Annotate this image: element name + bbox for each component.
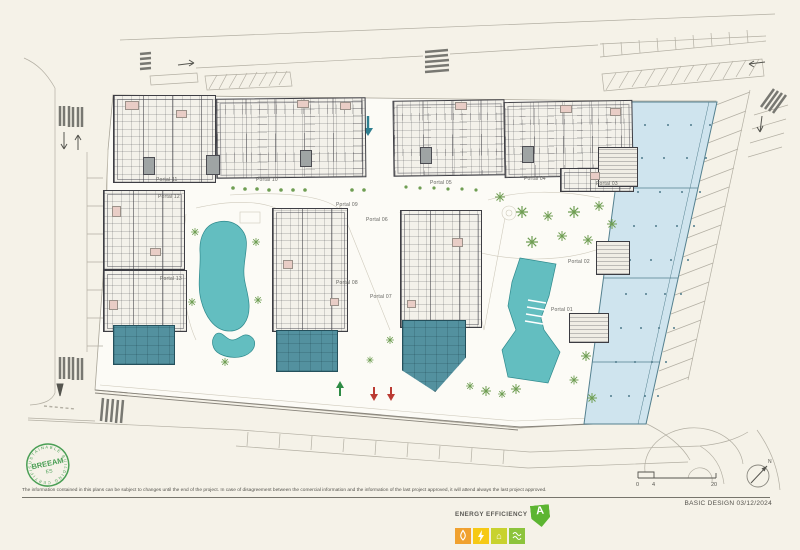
title-block: BASIC DESIGN 03/12/2024 [600, 500, 772, 507]
portal-label: Portal 11 [156, 177, 177, 183]
stair-core [522, 146, 534, 163]
terrace-patch [112, 206, 121, 217]
footer-rule [22, 497, 770, 498]
stair-core [300, 150, 312, 167]
stair-core [143, 157, 155, 175]
portal-label: Portal 02 [568, 259, 590, 265]
heating-waves-icon [509, 528, 525, 544]
scale-bar: 0 4 20 [628, 462, 728, 488]
portal-label: Portal 07 [370, 294, 392, 300]
terrace-patch [590, 172, 600, 180]
terrace-patch [455, 102, 467, 110]
breeam-region: ES [45, 468, 53, 475]
terrace-patch [452, 238, 463, 247]
terrace-patch [340, 102, 351, 110]
energy-efficiency-label: ENERGY EFFICIENCY A ⌂ [455, 505, 550, 544]
portal-core [596, 241, 630, 275]
terrace-patch [125, 101, 139, 110]
stair-core [420, 147, 432, 164]
portal-label: Portal 01 [551, 307, 573, 313]
svg-text:N: N [768, 459, 772, 465]
energy-label-title: ENERGY EFFICIENCY [455, 511, 527, 518]
portal-label: Portal 13 [160, 276, 182, 282]
terrace-patch [297, 100, 309, 108]
lightning-icon [473, 528, 489, 544]
energy-rating-arrow: A [530, 504, 551, 528]
portal-label: Portal 10 [256, 177, 278, 183]
terrace-patch [330, 298, 339, 306]
building-block [272, 208, 348, 332]
terrace-patch [109, 300, 118, 310]
disclaimer-text: The information contained in this plans … [22, 488, 582, 493]
water-drop-icon [455, 528, 471, 544]
terrace-patch [560, 105, 572, 113]
house-icon: ⌂ [491, 528, 507, 544]
portal-core [569, 313, 609, 343]
terrace-patch [150, 248, 161, 256]
svg-text:20: 20 [711, 482, 717, 488]
portal-label: Portal 06 [366, 217, 388, 223]
site-plan-sheet: Portal 11 Portal 10 Portal 12 Portal 13 … [0, 0, 800, 550]
portal-label: Portal 09 [336, 202, 358, 208]
portal-label: Portal 03 [596, 181, 618, 187]
portal-label: Portal 04 [524, 176, 546, 182]
svg-text:4: 4 [652, 482, 655, 488]
building-block [392, 99, 505, 177]
retail-block [113, 325, 175, 365]
north-arrow-icon: N [740, 448, 778, 494]
portal-label: Portal 05 [430, 180, 452, 186]
portal-label: Portal 08 [336, 280, 358, 286]
terrace-patch [610, 108, 621, 116]
terrace-patch [407, 300, 416, 308]
building-block [400, 210, 482, 328]
terrace-patch [176, 110, 187, 118]
portal-label: Portal 12 [158, 194, 180, 200]
retail-block [276, 330, 338, 372]
pool-main-left [199, 221, 249, 331]
stair-core [206, 155, 220, 175]
building-block [103, 190, 185, 270]
svg-text:0: 0 [636, 482, 639, 488]
terrace-patch [283, 260, 293, 269]
